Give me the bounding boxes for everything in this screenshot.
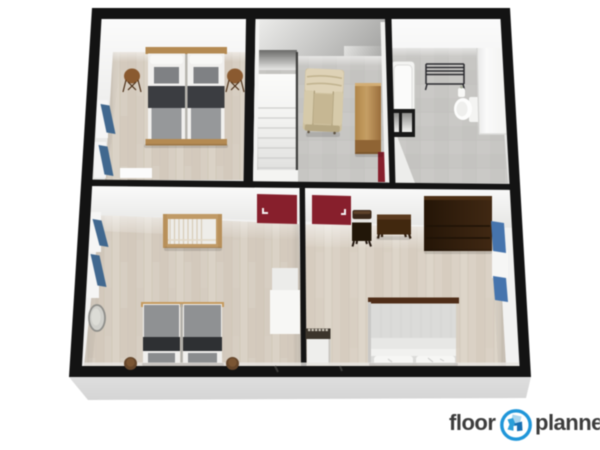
svg-text:floor: floor <box>449 410 496 435</box>
svg-text:planner: planner <box>535 410 600 435</box>
